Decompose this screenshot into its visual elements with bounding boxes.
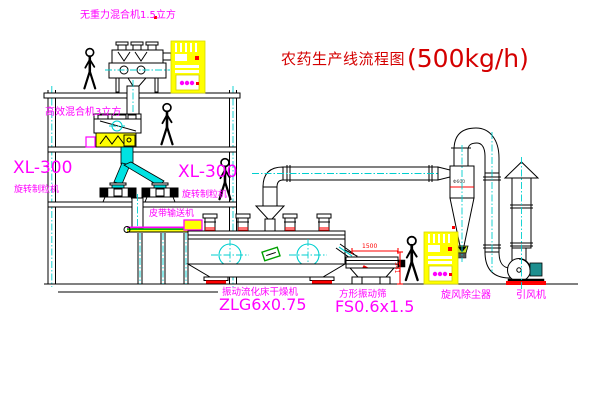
induced-draft-fan-drawing xyxy=(506,248,546,285)
fan-motor xyxy=(530,263,542,276)
label-dryer-model: ZLG6x0.75 xyxy=(219,297,307,313)
label-granulator-left-model: XL-300 xyxy=(13,160,72,177)
title-capacity: (500kg/h) xyxy=(407,44,529,73)
floor-slab-top xyxy=(44,93,240,98)
label-granulator-right-model: XL-300 xyxy=(178,164,237,181)
dim-sieve-height: 541 xyxy=(393,262,399,273)
fan-base xyxy=(506,281,546,285)
label-cyclone: 旋风除尘器 xyxy=(441,291,491,301)
control-cabinet-upper xyxy=(171,41,205,93)
dim-sieve-length: 1500 xyxy=(362,244,377,250)
control-cabinet-lower xyxy=(424,232,458,284)
title-text: 农药生产线流程图 xyxy=(281,48,405,69)
label-high-eff-mixer: 高效混合机3立方 xyxy=(45,108,121,118)
floor-slab-mid xyxy=(48,147,237,152)
granulator-discharge-duct xyxy=(132,194,143,231)
label-fan: 引风机 xyxy=(516,291,546,301)
label-granulator-left-name: 旋转制粒机 xyxy=(14,186,59,195)
granulator-left-drawing xyxy=(100,183,136,202)
granulator-right-drawing xyxy=(142,183,178,202)
high-eff-mixer-drawing xyxy=(86,114,141,147)
dim-cyclone-dia: Φ600 xyxy=(453,181,465,186)
person-ground xyxy=(406,237,418,280)
person-mid-floor xyxy=(162,104,173,145)
granulator-feed-y-pipe xyxy=(114,147,164,186)
conveyor-legs xyxy=(138,233,188,284)
label-sieve-model: FS0.6x1.5 xyxy=(335,299,414,315)
dryer-feet xyxy=(204,277,334,284)
person-top-floor xyxy=(84,49,95,89)
label-belt-conveyor: 皮带输送机 xyxy=(149,210,194,219)
exhaust-duct-drawing xyxy=(252,165,462,231)
label-gravity-mixer: 无重力混合机1.5立方 xyxy=(80,11,176,21)
cad-process-flow-drawing: 农药生产线流程图 (500kg/h) 无重力混合机1.5立方 高效混合机3立方 … xyxy=(0,0,600,403)
drawing-title: 农药生产线流程图 (500kg/h) xyxy=(281,44,529,73)
label-granulator-right-name: 旋转制粒机 xyxy=(182,191,227,200)
dryer-feed-hopper xyxy=(184,220,202,230)
